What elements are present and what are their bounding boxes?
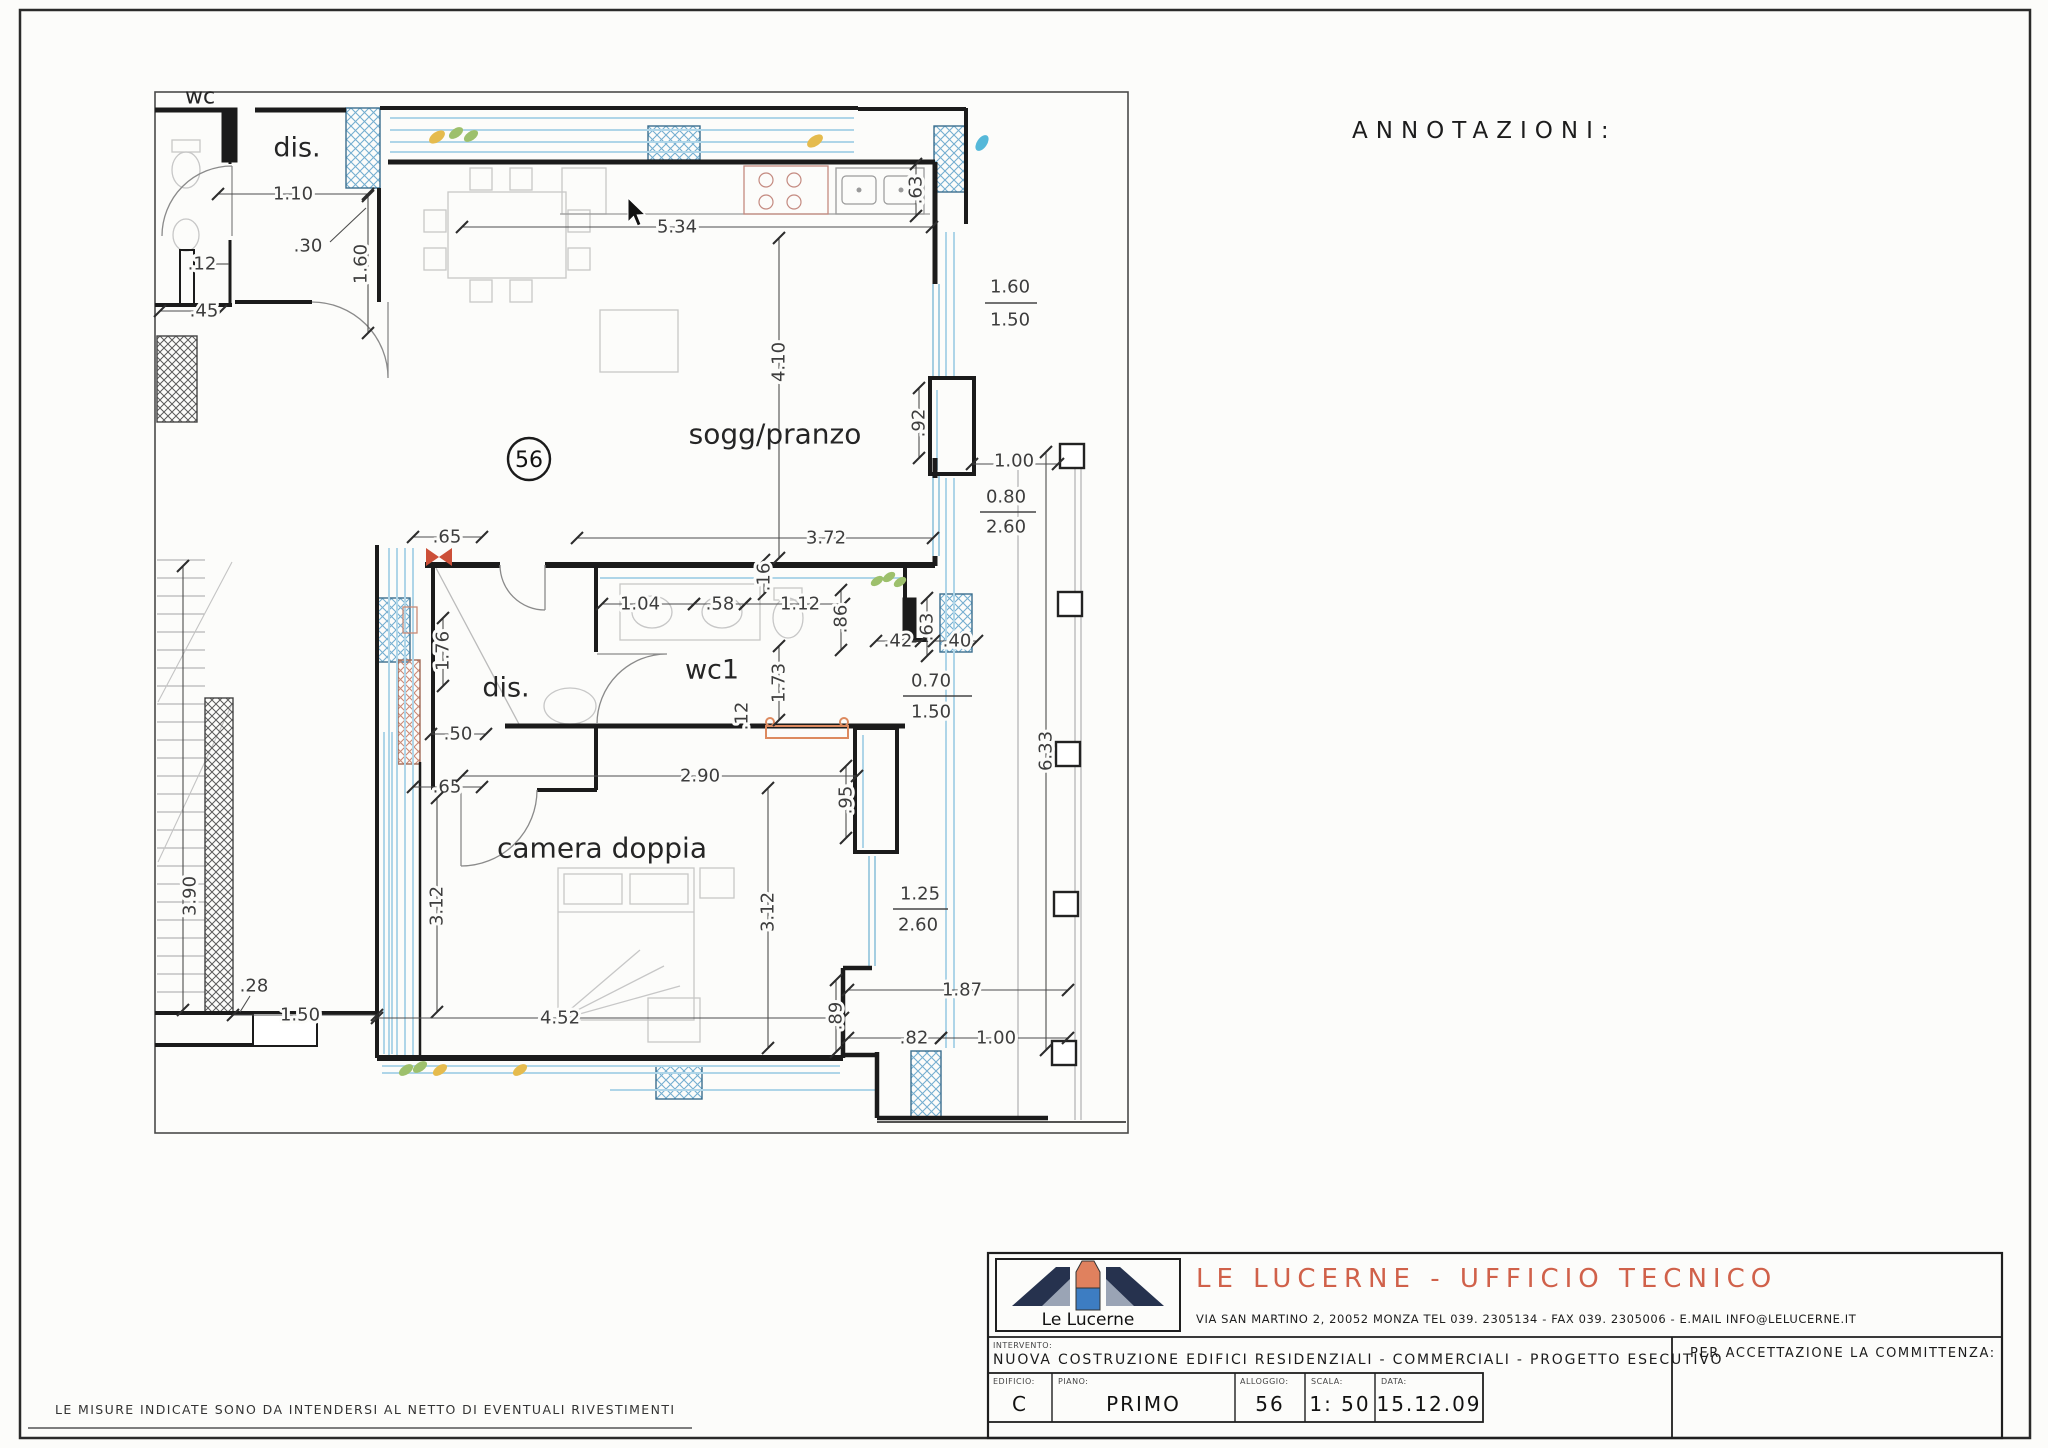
unit-number: 56 <box>515 448 543 473</box>
dimension-label: 1.50 <box>990 310 1030 331</box>
dimension-label: .16 <box>754 563 775 592</box>
field-value-piano: PRIMO <box>1052 1392 1235 1416</box>
unit-badge: 56 <box>508 438 550 480</box>
dimension-label: 2.60 <box>986 517 1026 538</box>
dimension-label: 3.72 <box>806 528 846 549</box>
company-address: VIA SAN MARTINO 2, 20052 MONZA TEL 039. … <box>1196 1312 1856 1326</box>
balcony <box>1018 444 1084 1120</box>
dimension-label: 2.60 <box>898 915 938 936</box>
drawing-sheet: 1.10.301.60.12.455.34.634.101.601.50.921… <box>0 0 2048 1448</box>
dimension-label: 1.04 <box>620 594 660 615</box>
company-logo <box>1012 1261 1164 1310</box>
room-label: dis. <box>482 673 529 704</box>
dimension-label: 1.10 <box>273 184 313 205</box>
field-value-scala: 1: 50 <box>1305 1392 1375 1416</box>
dimension-label: 0.80 <box>986 487 1026 508</box>
dimension-label: 1.25 <box>900 884 940 905</box>
dimension-label: .92 <box>909 409 930 438</box>
dimension-label: .86 <box>831 605 852 634</box>
floor-plan: 1.10.301.60.12.455.34.634.101.601.50.921… <box>0 0 2048 1448</box>
field-label-alloggio: ALLOGGIO: <box>1240 1377 1289 1386</box>
dimension-label: .63 <box>917 613 938 642</box>
dimension-label: 2.90 <box>680 766 720 787</box>
dimension-label: 1.50 <box>911 702 951 723</box>
dimension-label: .95 <box>836 786 857 815</box>
footer-note: LE MISURE INDICATE SONO DA INTENDERSI AL… <box>55 1402 675 1417</box>
dimension-label: .12 <box>732 702 753 731</box>
dimension-label: .12 <box>188 254 217 275</box>
logo-caption: Le Lucerne <box>996 1310 1180 1330</box>
field-value-data: 15.12.09 <box>1375 1392 1483 1416</box>
dimension-label: 1.00 <box>994 451 1034 472</box>
room-label: camera doppia <box>497 832 707 865</box>
room-label: wc <box>185 85 215 110</box>
field-label-edificio: EDIFICIO: <box>993 1377 1035 1386</box>
dimension-label: 1.60 <box>351 244 372 284</box>
intervento-text: NUOVA COSTRUZIONE EDIFICI RESIDENZIALI -… <box>993 1352 1723 1368</box>
dimension-label: 1.60 <box>990 277 1030 298</box>
dimension-label: 1.87 <box>942 980 982 1001</box>
dimension-label: 3.90 <box>180 876 201 916</box>
dimension-label: 4.10 <box>769 342 790 382</box>
dimension-label: 1.12 <box>780 594 820 615</box>
page-border <box>20 10 2030 1438</box>
dimension-label: .28 <box>240 976 269 997</box>
dimension-label: 3.12 <box>427 886 448 926</box>
mouse-cursor <box>628 198 645 226</box>
dimension-label: 1.50 <box>280 1005 320 1026</box>
dimension-label: .50 <box>444 724 473 745</box>
field-value-edificio: C <box>988 1392 1052 1416</box>
field-value-alloggio: 56 <box>1235 1392 1305 1416</box>
room-label: dis. <box>273 133 320 164</box>
field-label-data: DATA: <box>1381 1377 1407 1386</box>
dimension-label: .89 <box>826 1002 847 1031</box>
dimension-label: 0.70 <box>911 671 951 692</box>
dimension-label: 1.73 <box>769 663 790 703</box>
acceptance-text: PER ACCETTAZIONE LA COMMITTENZA: <box>1690 1346 1996 1361</box>
dimension-label: 3.12 <box>758 892 779 932</box>
company-name: LE LUCERNE - UFFICIO TECNICO <box>1196 1264 1777 1294</box>
dimension-label: .42 <box>884 631 913 652</box>
room-label: sogg/pranzo <box>689 418 862 451</box>
dimension-label: .30 <box>294 236 323 257</box>
dimension-label: .40 <box>943 631 972 652</box>
dimension-label: 6.33 <box>1036 731 1057 771</box>
dimension-label: 5.34 <box>657 217 697 238</box>
furniture <box>172 140 930 1042</box>
field-label-piano: PIANO: <box>1058 1377 1089 1386</box>
dimension-label: .45 <box>190 301 219 322</box>
annotations-heading: ANNOTAZIONI: <box>1352 118 1617 144</box>
dimension-label: .65 <box>433 527 462 548</box>
kitchen <box>744 166 924 214</box>
walls <box>155 108 1126 1122</box>
room-label: wc1 <box>685 655 739 686</box>
intervento-label: INTERVENTO: <box>993 1341 1052 1350</box>
dimension-label: .58 <box>706 594 735 615</box>
dimension-label: .63 <box>906 176 927 205</box>
dimension-label: 1.76 <box>433 631 454 671</box>
dimension-label: 1.00 <box>976 1028 1016 1049</box>
dimension-label: .82 <box>900 1028 929 1049</box>
dimension-label: 4.52 <box>540 1008 580 1029</box>
field-label-scala: SCALA: <box>1311 1377 1343 1386</box>
